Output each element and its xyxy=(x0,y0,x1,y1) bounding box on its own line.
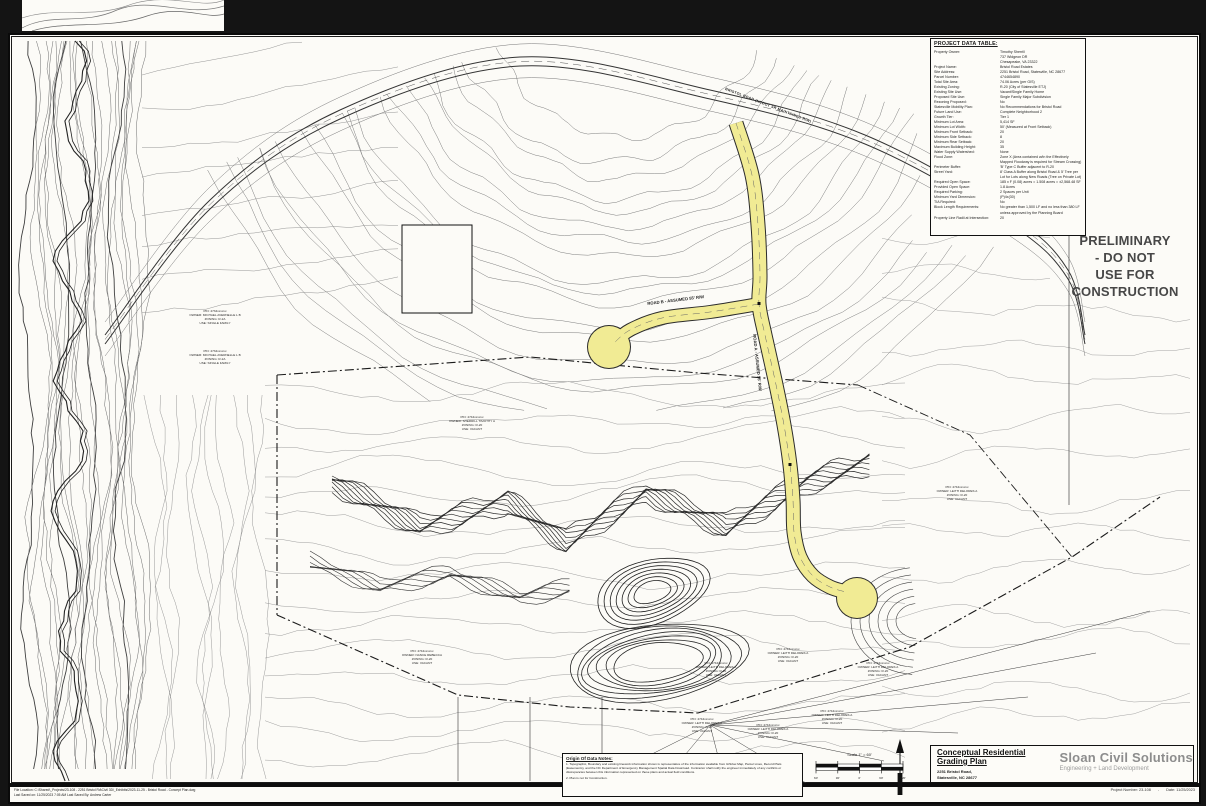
separator: - xyxy=(1158,788,1159,792)
project-data-table-title: PROJECT DATA TABLE: xyxy=(934,41,1082,47)
data-row-label: Street Yard: xyxy=(934,170,1000,180)
notes-title: Origin Of Data Notes: xyxy=(566,756,799,761)
note-item: 2. Plan is not for Construction. xyxy=(566,776,799,780)
project-data-row: Flood Zone:Zone X (Area contained w/in t… xyxy=(934,155,1082,165)
stamp-line: CONSTRUCTION xyxy=(1062,284,1188,301)
firm-name: Sloan Civil Solutions xyxy=(1060,750,1194,765)
project-data-table-rows: Property Owner:Timothy Sherrill737 Widge… xyxy=(934,50,1082,221)
origin-of-data-notes: Origin Of Data Notes: 1. Topographic, Bo… xyxy=(562,753,803,797)
project-number: Project Number: 23-108 xyxy=(1111,788,1151,792)
data-row-value: Zone X (Area contained w/in the Effectiv… xyxy=(1000,155,1082,165)
stamp-line: - DO NOT xyxy=(1062,250,1188,267)
scale-label: Scale 1" = 60' xyxy=(812,752,907,757)
site-address: 2251 Bristol Road, Statesville, NC 28677 xyxy=(937,769,1054,780)
title-block-plan-info: Conceptual Residential Grading Plan 2251… xyxy=(931,746,1054,782)
data-row-label: Block Length Requirements: xyxy=(934,205,1000,215)
last-saved: Last Saved on: 11/25/2023 7:05 AM Last S… xyxy=(14,793,344,798)
title-block-firm-info: Sloan Civil Solutions Engineering + Land… xyxy=(1054,746,1194,782)
file-info: File Location: C:\Shared\_Projects\23-10… xyxy=(14,788,344,798)
project-number-line: Project Number: 23-108-Date: 11/25/2023 xyxy=(1111,788,1195,792)
site-address-line2: Statesville, NC 28677 xyxy=(937,775,1054,780)
project-data-table: PROJECT DATA TABLE: Property Owner:Timot… xyxy=(930,38,1086,236)
data-row-value: 20 xyxy=(1000,216,1082,221)
data-row-value: 8' Class A Buffer along Bristol Road & 5… xyxy=(1000,170,1082,180)
adjacent-sheet-fragment xyxy=(22,0,224,31)
plan-title-line2: Grading Plan xyxy=(937,758,1054,767)
data-row-label: Property Line Radii at Intersection: xyxy=(934,216,1000,221)
preliminary-stamp: PRELIMINARY - DO NOT USE FOR CONSTRUCTIO… xyxy=(1062,233,1188,301)
stamp-line: PRELIMINARY xyxy=(1062,233,1188,250)
title-block: Conceptual Residential Grading Plan 2251… xyxy=(930,745,1194,783)
project-data-row: Block Length Requirements:No greater tha… xyxy=(934,205,1082,215)
plan-title: Conceptual Residential Grading Plan xyxy=(937,749,1054,767)
note-item: 1. Topographic, Boundary and existing li… xyxy=(566,762,799,775)
plan-date: Date: 11/25/2023 xyxy=(1166,788,1195,792)
stamp-line: USE FOR xyxy=(1062,267,1188,284)
project-data-row: Street Yard:8' Class A Buffer along Bris… xyxy=(934,170,1082,180)
data-row-label: Flood Zone: xyxy=(934,155,1000,165)
data-row-value: No greater than 1,500 LF and no less tha… xyxy=(1000,205,1082,215)
plan-sheet-viewport: N PROJECT DATA TABLE: Property Owner:Tim… xyxy=(0,0,1206,806)
drawing-sheet: N PROJECT DATA TABLE: Property Owner:Tim… xyxy=(8,33,1201,804)
firm-tagline: Engineering + Land Development xyxy=(1060,766,1194,772)
notes-items: 1. Topographic, Boundary and existing li… xyxy=(566,762,799,780)
adjacent-sheet-contours xyxy=(22,0,224,31)
project-data-row: Property Line Radii at Intersection:20 xyxy=(934,216,1082,221)
